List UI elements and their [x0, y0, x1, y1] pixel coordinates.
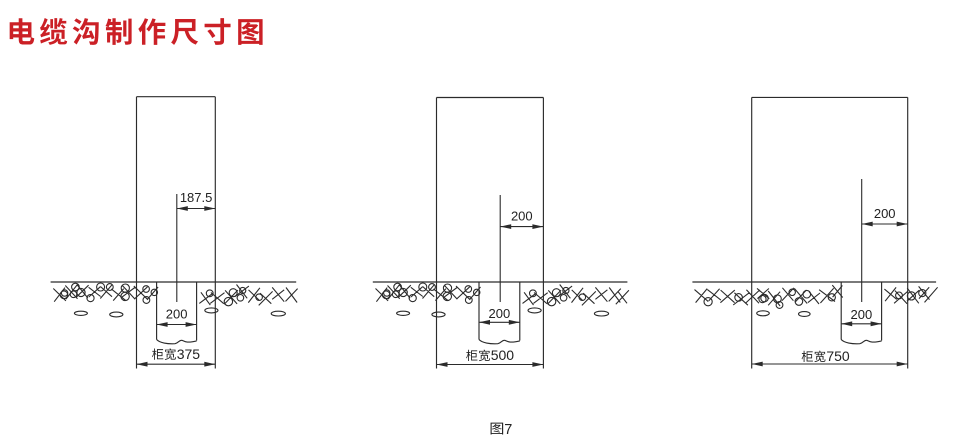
svg-text:200: 200: [489, 306, 511, 321]
svg-text:7: 7: [504, 422, 512, 438]
svg-text:200: 200: [511, 209, 533, 224]
svg-text:375: 375: [177, 346, 201, 362]
svg-text:200: 200: [166, 306, 188, 321]
svg-text:500: 500: [491, 347, 515, 363]
svg-text:187.5: 187.5: [180, 190, 213, 205]
svg-text:750: 750: [826, 348, 850, 364]
svg-text:200: 200: [874, 206, 896, 221]
svg-text:200: 200: [851, 307, 873, 322]
